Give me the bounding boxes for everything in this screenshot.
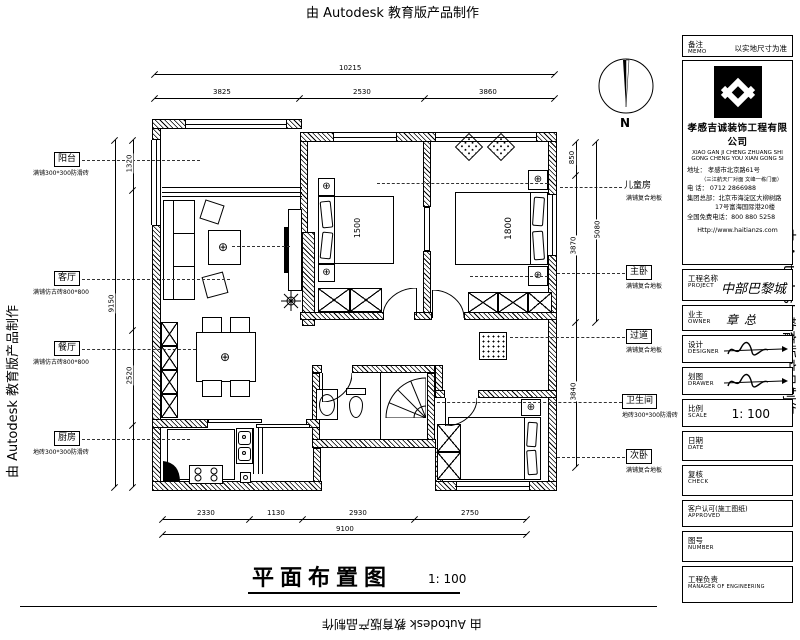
drawer-label-cn: 划图: [688, 372, 714, 381]
nightstand-lamp: ⊕: [318, 178, 335, 196]
gas-meter-dot: [243, 475, 248, 480]
wardrobe: [350, 288, 382, 312]
dim-label: 10215: [338, 65, 362, 72]
titleblock-designer: 设计DESIGNER: [682, 335, 793, 363]
balcony-window: [151, 140, 161, 225]
finish-note: 满铺仿古砖800*800: [33, 290, 89, 296]
room-label-kitchen: 厨房: [54, 431, 80, 446]
company-hq-2: 17号富海国际港20楼: [687, 203, 788, 213]
titleblock-project: 工程名称PROJECT 中部巴黎城: [682, 269, 793, 301]
wall: [313, 448, 321, 482]
titleblock-check: 复核CHECK: [682, 465, 793, 496]
number-label-en: NUMBER: [688, 545, 714, 552]
company-pinyin-2: GONG CHENG YOU XIAN GONG SI: [683, 156, 792, 162]
plan-title-scale: 1: 100: [428, 572, 466, 586]
titleblock-approved: 客户认可(施工图纸)APPROVED: [682, 500, 793, 527]
throw-pillow: [202, 272, 229, 299]
wall: [286, 119, 302, 129]
pillow: [526, 422, 538, 448]
children-room-door: [383, 288, 417, 316]
dim-label: 9100: [335, 526, 355, 533]
plant-icon: [280, 290, 302, 312]
project-label-cn: 工程名称: [688, 274, 718, 283]
manager-label-en: MANAGER OF ENGINEERING: [688, 584, 765, 590]
company-name: 孝感吉诚装饰工程有限公司: [683, 120, 792, 148]
watermark-top: 由 Autodesk 教育版产品制作: [306, 2, 479, 21]
number-label-cn: 图号: [688, 536, 714, 545]
check-label-en: CHECK: [688, 479, 708, 486]
owner-label-en: OWNER: [688, 319, 711, 326]
wall: [352, 365, 435, 373]
wall: [548, 255, 557, 482]
door-leaf: [424, 207, 430, 251]
memo-value: 以实地尺寸为准: [735, 43, 788, 54]
nightstand-lamp: ⊕: [318, 264, 335, 282]
wall: [300, 312, 384, 320]
dim-label: 2930: [348, 510, 368, 517]
wardrobe: [437, 424, 461, 452]
tv-screen: [284, 227, 288, 273]
leader-line: [557, 457, 625, 458]
sofa-cushion-line: [173, 266, 195, 267]
watermark-left: 由 Autodesk 教育版产品制作: [2, 305, 21, 478]
wall: [152, 128, 161, 140]
dimension-line: [155, 74, 555, 75]
finish-note: 地砖300*300防滑砖: [622, 413, 678, 419]
sofa-cushion-line: [173, 233, 195, 234]
dimension-line: [155, 98, 555, 99]
drawer-label-en: DRAWER: [688, 381, 714, 388]
sofa-back-line: [173, 200, 174, 300]
leader-line: [560, 187, 622, 188]
room-label-secondary: 次卧: [626, 449, 652, 464]
master-room-door: [432, 290, 464, 318]
leader-line: [82, 439, 190, 440]
dimension-line: [163, 534, 527, 535]
room-label-hall: 过道: [626, 329, 652, 344]
owner-value: 章总: [726, 311, 762, 328]
storage-cabinet: [161, 394, 178, 418]
dining-chair: [202, 380, 222, 397]
dining-chair: [230, 380, 250, 397]
scale-label-cn: 比例: [688, 404, 707, 413]
titleblock-owner: 业主OWNER 章总: [682, 305, 793, 331]
dim-label: 1320: [126, 154, 133, 174]
dim-label: 3860: [478, 89, 498, 96]
pillow: [532, 197, 545, 227]
leader-line: [82, 160, 200, 161]
dimension-line: [133, 140, 134, 487]
dim-tick: [129, 484, 136, 491]
finish-note: 满铺300*300防滑砖: [33, 171, 89, 177]
finish-note: 满铺复合地板: [626, 196, 662, 202]
wall: [435, 390, 445, 398]
bathroom-door: [322, 373, 352, 402]
corner-counter: [163, 461, 180, 482]
dim-tick: [592, 319, 599, 326]
storage-cabinet: [161, 370, 178, 394]
scale-value: 1: 100: [732, 407, 770, 421]
designer-label-en: DESIGNER: [688, 349, 719, 356]
wall: [312, 439, 436, 448]
room-label-children: 儿童房: [624, 180, 651, 193]
dim-label: 850: [569, 150, 576, 165]
dim-label: 2520: [126, 366, 133, 386]
faucet-dot: [242, 451, 246, 455]
dim-label: 2330: [196, 510, 216, 517]
dim-label: 2530: [352, 89, 372, 96]
company-logo-icon: [714, 66, 762, 118]
axis-dashed-line: [232, 246, 290, 247]
dim-label: 3870: [570, 236, 577, 256]
room-label-living: 客厅: [54, 271, 80, 286]
dim-label: 1130: [266, 510, 286, 517]
finish-note: 满铺复合地板: [626, 284, 662, 290]
sheet-border-line: [20, 606, 657, 607]
check-label-cn: 复核: [688, 470, 708, 479]
headboard-line: [530, 192, 531, 265]
wall: [312, 365, 322, 373]
north-compass-icon: [597, 57, 655, 115]
lighting-dashed-line: [377, 183, 548, 184]
pillow: [526, 450, 538, 476]
dim-label: 3840: [570, 382, 577, 402]
sliding-door: [256, 424, 310, 428]
finish-note: 满铺复合地板: [626, 348, 662, 354]
room-label-dining: 餐厅: [54, 341, 80, 356]
dimension-line: [163, 519, 527, 520]
ceiling-lamp-icon: ⊕: [218, 241, 228, 253]
company-address-note: （三江航天厂对面 文峰一栋门面）: [687, 176, 788, 184]
manager-label-cn: 工程负责: [688, 575, 765, 584]
room-label-balcony: 阳台: [54, 152, 80, 167]
finish-note: 满铺复合地板: [626, 468, 662, 474]
children-bed-size: 1500: [354, 218, 362, 238]
wall: [478, 390, 557, 398]
designer-label-cn: 设计: [688, 340, 719, 349]
dim-label: 2750: [460, 510, 480, 517]
stove: [189, 465, 223, 484]
wall: [423, 141, 431, 207]
titleblock-date: 日期DATE: [682, 431, 793, 461]
hall-cabinet: [479, 332, 507, 360]
headboard-line: [524, 417, 525, 480]
title-underline: [248, 592, 460, 594]
dim-tick: [572, 464, 579, 471]
headboard-line: [334, 196, 335, 264]
drawer-signature: [724, 372, 788, 392]
wall: [152, 481, 322, 491]
wall: [423, 251, 431, 313]
wall: [152, 419, 208, 428]
titleblock-memo: 备注MEMO 以实地尺寸为准: [682, 35, 793, 57]
date-label-cn: 日期: [688, 436, 704, 445]
sofa: [163, 200, 195, 300]
approved-label-en: APPROVED: [688, 513, 748, 520]
project-value: 中部巴黎城: [721, 278, 786, 297]
approved-label-cn: 客户认可(施工图纸): [688, 505, 748, 513]
faucet-dot: [242, 435, 246, 439]
shower-divider: [380, 373, 381, 439]
leader-line: [557, 273, 625, 274]
window: [334, 132, 396, 142]
finish-note: 满铺仿古砖800*800: [33, 360, 89, 366]
dim-label: 5080: [594, 220, 601, 240]
leader-line: [82, 279, 230, 280]
storage-cabinet: [161, 322, 178, 346]
tv-cabinet: [288, 209, 302, 291]
lighting-dashed-line: [470, 276, 548, 277]
dim-label: 9150: [108, 294, 115, 314]
company-address: 地址： 孝感市北京路61号: [687, 166, 788, 176]
sliding-door: [208, 419, 262, 423]
wall: [548, 141, 557, 195]
date-label-en: DATE: [688, 445, 704, 452]
room-label-master: 主卧: [626, 265, 652, 280]
shower-fan: [383, 375, 426, 418]
finish-note: 地砖300*300防滑砖: [33, 450, 89, 456]
window: [436, 132, 536, 142]
throw-pillow: [199, 199, 224, 224]
dimension-line: [115, 140, 116, 487]
wall: [427, 373, 435, 440]
dim-tick: [523, 516, 530, 523]
window: [455, 481, 531, 491]
plan-title: 平面布置图: [252, 560, 392, 592]
company-hq-1: 集团总部：北京市海淀区大柳树路: [687, 194, 788, 204]
pillow: [532, 231, 545, 261]
room-label-bathroom: 卫生间: [622, 394, 657, 409]
nightstand-lamp: ⊕: [528, 170, 548, 190]
titleblock-scale: 比例SCALE 1: 100: [682, 399, 793, 427]
window: [547, 195, 557, 255]
dim-tick: [523, 531, 530, 538]
dim-label: 3825: [212, 89, 232, 96]
table-decor-icon: ⊕: [220, 351, 230, 363]
wall: [464, 312, 557, 320]
wardrobe: [318, 288, 350, 312]
dim-tick: [551, 71, 558, 78]
owner-label-cn: 业主: [688, 310, 711, 319]
company-website: Http://www.haitianzs.com: [687, 226, 788, 236]
master-bed-size: 1800: [505, 217, 514, 240]
scale-label-en: SCALE: [688, 413, 707, 420]
titleblock-drawer: 划图DRAWER: [682, 367, 793, 395]
titleblock-company: 孝感吉诚装饰工程有限公司 XIAO GAN JI CHENG ZHUANG SH…: [682, 60, 793, 265]
wardrobe: [498, 292, 528, 313]
wardrobe: [468, 292, 498, 313]
titleblock-number: 图号NUMBER: [682, 531, 793, 562]
dim-tick: [111, 484, 118, 491]
company-hotline: 全国免费电话：800 880 5258: [687, 213, 788, 223]
wall: [152, 225, 161, 482]
leader-line: [82, 349, 196, 350]
wall: [529, 481, 557, 491]
titleblock-manager: 工程负责MANAGER OF ENGINEERING: [682, 566, 793, 603]
compass-north-label: N: [620, 116, 630, 130]
balcony-slider: [162, 187, 302, 197]
drawing-sheet: 由 Autodesk 教育版产品制作 由 Autodesk 教育版产品制作 由 …: [0, 0, 800, 640]
wardrobe: [528, 292, 552, 313]
wall: [435, 481, 457, 491]
memo-label-cn: 备注: [688, 40, 707, 49]
leader-line: [510, 337, 625, 338]
window: [186, 119, 286, 129]
memo-label-en: MEMO: [688, 49, 707, 56]
company-phone: 电 话： 0712 2866988: [687, 184, 788, 194]
project-label-en: PROJECT: [688, 283, 718, 290]
watermark-bottom: 由 Autodesk 教育版产品制作: [322, 616, 482, 633]
leader-line: [437, 402, 622, 403]
wardrobe: [437, 452, 461, 480]
door-pocket: [253, 428, 263, 474]
dim-tick: [551, 95, 558, 102]
designer-signature: [724, 340, 788, 360]
dimension-line: [576, 142, 577, 467]
